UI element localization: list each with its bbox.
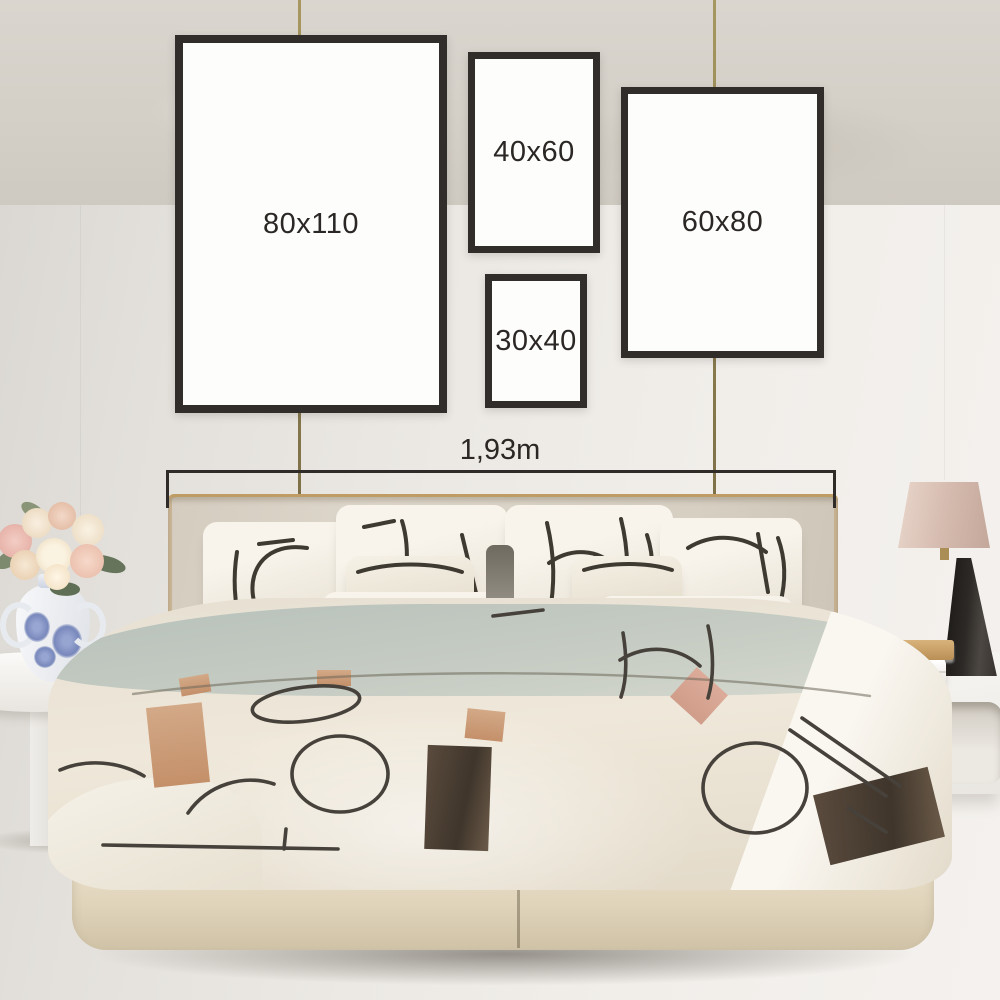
frame-80x110: 80x110 xyxy=(175,35,447,413)
rose xyxy=(70,544,104,578)
frame-80x110-label: 80x110 xyxy=(263,208,359,241)
lamp-neck xyxy=(940,548,949,560)
bed-width-measure-tick-right xyxy=(833,470,836,508)
frame-30x40: 30x40 xyxy=(485,274,587,408)
bed-base-seam xyxy=(517,882,520,948)
rose xyxy=(44,564,70,590)
duvet xyxy=(48,598,952,890)
bedroom-size-guide-photo: 80x110 40x60 60x80 30x40 1,93m xyxy=(0,0,1000,1000)
frame-40x60: 40x60 xyxy=(468,52,600,253)
frame-60x80: 60x80 xyxy=(621,87,824,358)
frame-40x60-label: 40x60 xyxy=(493,136,575,169)
frame-60x80-label: 60x80 xyxy=(682,206,764,239)
bed-width-measure-tick-left xyxy=(166,470,169,508)
bed-width-measure-line xyxy=(166,470,836,473)
lamp-shade xyxy=(898,482,990,548)
rose-bouquet xyxy=(0,498,132,606)
pattern-line-art xyxy=(48,598,952,890)
vase-blue-pattern xyxy=(24,612,50,642)
frame-30x40-label: 30x40 xyxy=(495,325,577,358)
bed-width-label: 1,93m xyxy=(400,434,600,467)
rose xyxy=(72,514,104,546)
